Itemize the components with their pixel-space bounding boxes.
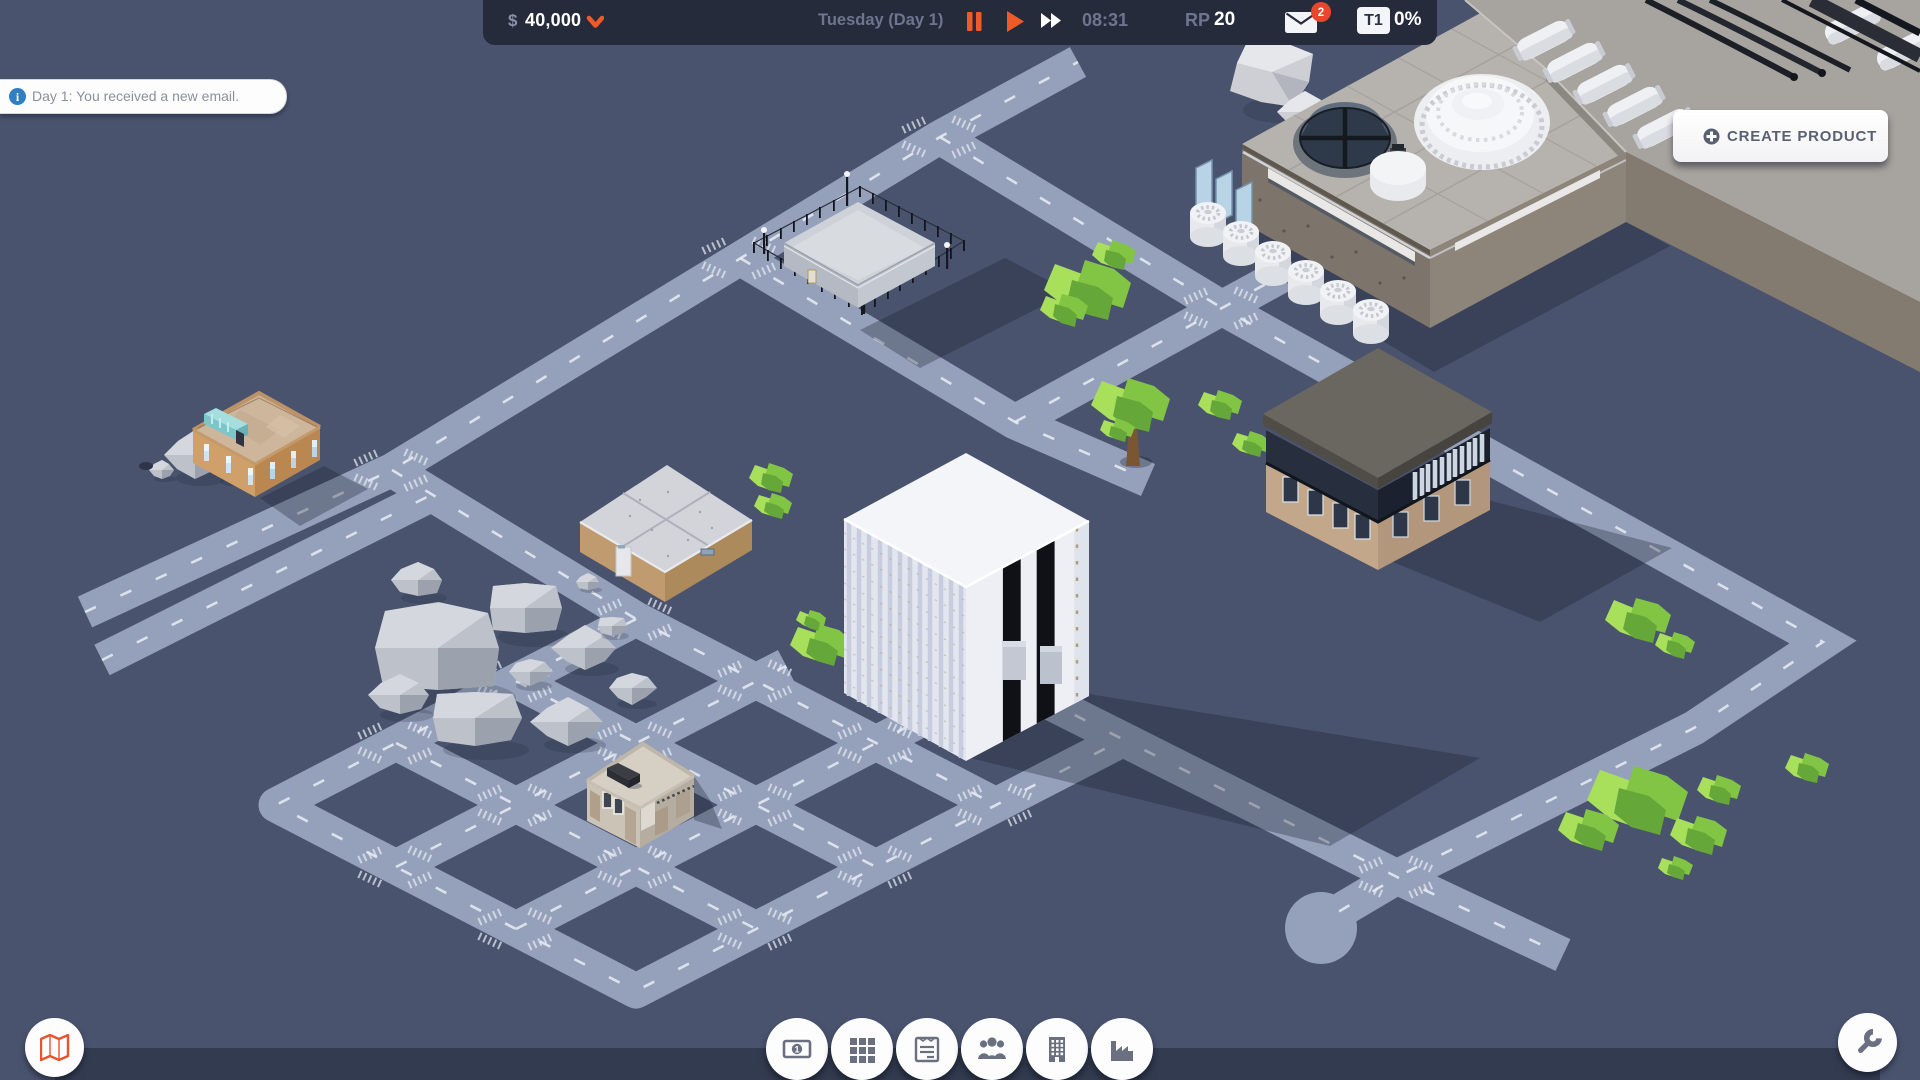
svg-text:2: 2 bbox=[1318, 7, 1324, 19]
svg-text:1: 1 bbox=[794, 1045, 799, 1055]
